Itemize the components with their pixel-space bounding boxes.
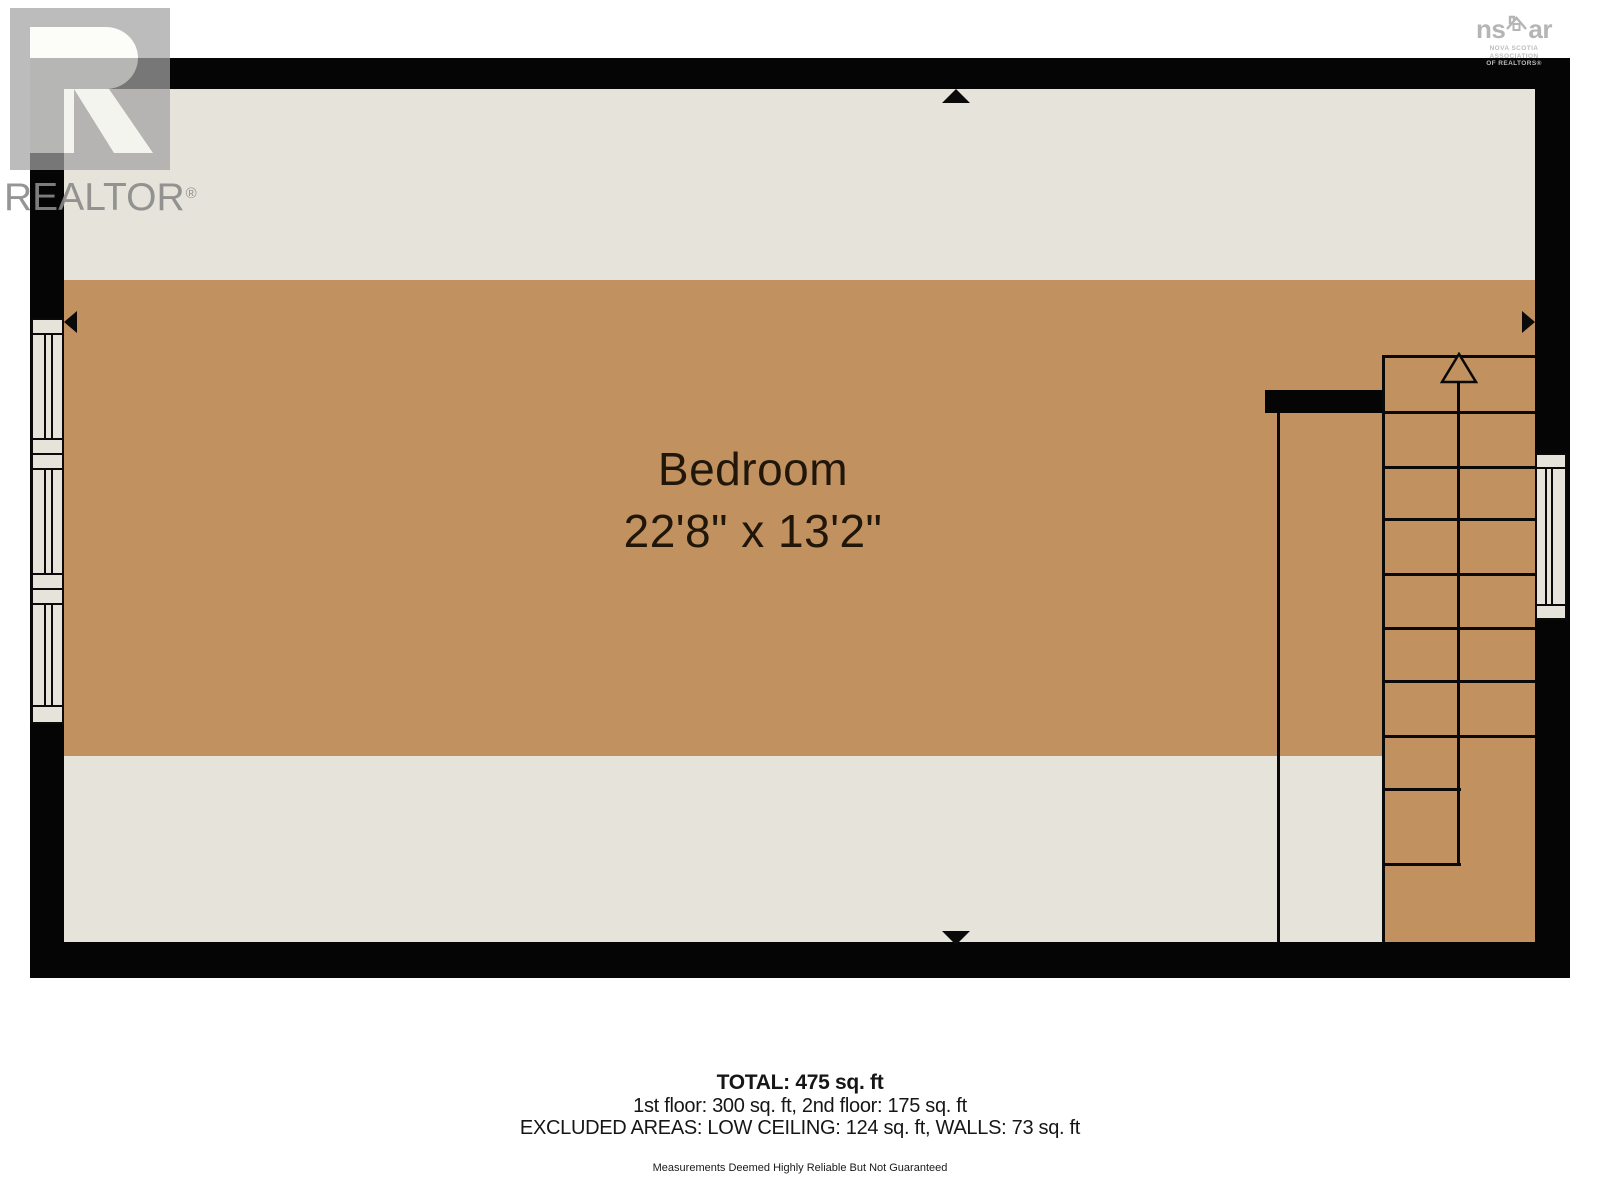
railing-line — [1277, 413, 1280, 942]
room-dimensions: 22'8" x 13'2" — [453, 500, 1053, 562]
window-mullion — [1551, 469, 1553, 604]
window-frame-line — [31, 573, 64, 575]
dimension-arrow-bottom-icon — [942, 931, 970, 945]
realtor-watermark: REALTOR® — [0, 0, 200, 230]
window-frame-line — [31, 333, 64, 335]
window-frame-line — [31, 588, 64, 590]
stair-up-arrow-icon — [1440, 352, 1478, 384]
room-name: Bedroom — [453, 438, 1053, 500]
nsar-logo: ns ar NOVA SCOTIA ASSOCIATION OF REALTOR… — [1472, 14, 1556, 68]
total-area-text: TOTAL: 475 sq. ft — [40, 1072, 1560, 1095]
window-mullion — [51, 470, 53, 573]
dimension-arrow-top-icon — [942, 89, 970, 103]
stair-half-tread-line — [1382, 863, 1461, 866]
nsar-caption: NOVA SCOTIA ASSOCIATION OF REALTORS® — [1472, 45, 1556, 68]
window-frame-line — [31, 603, 64, 605]
window-mullion — [44, 605, 46, 705]
low-ceiling-area-bottom — [64, 756, 1382, 942]
excluded-areas-text: EXCLUDED AREAS: LOW CEILING: 124 sq. ft,… — [40, 1117, 1560, 1140]
realtor-block-r-icon — [10, 8, 170, 170]
window-frame-line — [31, 453, 64, 455]
window-left — [31, 318, 64, 724]
low-ceiling-area-top — [64, 89, 1535, 280]
dimension-arrow-right-icon — [1522, 311, 1535, 333]
window-frame-line — [31, 705, 64, 707]
floor-plan: Bedroom 22'8" x 13'2" — [0, 0, 1600, 1200]
dimension-arrow-left-icon — [64, 311, 77, 333]
room-label: Bedroom 22'8" x 13'2" — [453, 438, 1053, 562]
realtor-wordmark: REALTOR® — [4, 176, 196, 220]
window-mullion — [1545, 469, 1547, 604]
window-mullion — [44, 335, 46, 438]
interior-wall-stub — [1265, 390, 1382, 413]
measurement-disclaimer: Measurements Deemed Highly Reliable But … — [40, 1157, 1560, 1180]
nsar-wordmark: ns ar — [1472, 14, 1556, 42]
window-frame-line — [1535, 604, 1567, 606]
stair-left-line — [1382, 355, 1385, 942]
window-mullion — [51, 605, 53, 705]
window-frame-line — [31, 468, 64, 470]
window-frame-line — [31, 438, 64, 440]
floor-areas-text: 1st floor: 300 sq. ft, 2nd floor: 175 sq… — [40, 1095, 1560, 1118]
area-summary: TOTAL: 475 sq. ft 1st floor: 300 sq. ft,… — [40, 1072, 1560, 1179]
window-mullion — [51, 335, 53, 438]
window-mullion — [44, 470, 46, 573]
registered-mark: ® — [186, 185, 197, 202]
stair-center-line — [1457, 378, 1460, 865]
stair-half-tread-line — [1382, 788, 1461, 791]
house-icon — [1506, 14, 1527, 41]
